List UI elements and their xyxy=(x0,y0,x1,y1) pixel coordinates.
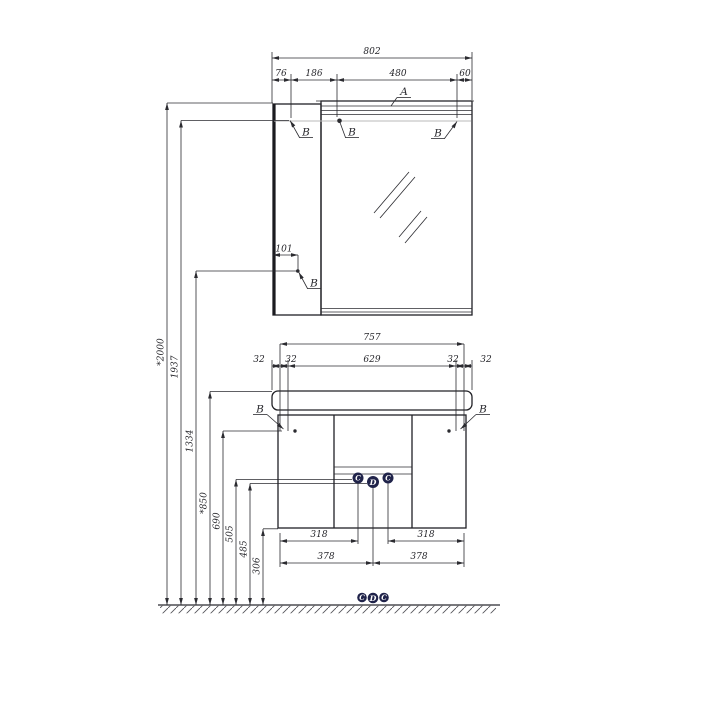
vanity-unit: C D C xyxy=(272,366,472,566)
dim-101-label: 101 xyxy=(275,245,292,255)
mirror-glass-hatch xyxy=(374,172,427,243)
side-offset-dimension: 101 B xyxy=(273,245,321,290)
mount-b5-label: B xyxy=(255,404,264,416)
outlet-d-label: D xyxy=(369,478,377,487)
technical-drawing: 802 76 186 480 60 A B B xyxy=(0,0,720,720)
dim-32a-label: 32 xyxy=(253,355,265,365)
dim-186-label: 186 xyxy=(305,69,322,79)
dim-318l-label: 318 xyxy=(310,530,327,540)
dim-629-label: 629 xyxy=(363,355,380,365)
mount-b6-label: B xyxy=(478,404,487,416)
height-505-label: 505 xyxy=(226,525,236,542)
dim-32d-label: 32 xyxy=(480,355,492,365)
outlet-c-label: C xyxy=(385,474,391,483)
dim-802-label: 802 xyxy=(363,47,380,57)
ground-hatch xyxy=(160,606,496,614)
dim-76-label: 76 xyxy=(275,69,287,79)
floor: C D C xyxy=(158,593,500,614)
height-690-label: 690 xyxy=(213,512,223,529)
mount-point-dot xyxy=(337,119,342,124)
dim-757-label: 757 xyxy=(363,333,380,343)
mount-b1-label: B xyxy=(301,127,310,139)
mirror-top-dimensions: 802 76 186 480 60 xyxy=(272,47,472,118)
drawing-canvas: 802 76 186 480 60 A B B xyxy=(0,0,720,720)
vanity-callouts: B B xyxy=(253,404,490,431)
bottom-dim-arrows xyxy=(280,539,464,565)
height-485-label: 485 xyxy=(240,540,250,558)
floor-outlet-d-label: D xyxy=(369,594,377,603)
section-a-label: A xyxy=(399,86,408,98)
height-1334-label: 1334 xyxy=(186,429,196,452)
countertop xyxy=(272,391,472,410)
dim-32b-label: 32 xyxy=(285,355,297,365)
dim-60-label: 60 xyxy=(459,69,471,79)
dimension-arrows-top xyxy=(272,56,472,82)
vanity-bottom-dimensions: 318 318 378 378 xyxy=(280,530,464,567)
dim-378l-label: 378 xyxy=(317,552,334,562)
height-dimensions: *2000 1937 1334 *850 690 505 485 306 xyxy=(157,103,368,605)
outlet-c-label: C xyxy=(355,474,361,483)
mount-b3-label: B xyxy=(433,128,442,140)
bracket-point-dot xyxy=(293,429,296,432)
height-850-label: *850 xyxy=(200,492,210,514)
hanging-brackets xyxy=(280,366,464,431)
dim-32c-label: 32 xyxy=(447,355,459,365)
mirror-callouts: A B B B xyxy=(288,86,458,140)
mount-b4-label: B xyxy=(309,278,318,290)
bracket-point-dot xyxy=(447,429,450,432)
dim-378r-label: 378 xyxy=(410,552,427,562)
height-306-label: 306 xyxy=(253,557,263,574)
floor-outlet-c-label: C xyxy=(381,593,387,602)
height-2000-label: *2000 xyxy=(157,338,167,366)
dim-480-label: 480 xyxy=(388,69,406,79)
height-1937-label: 1937 xyxy=(171,355,181,378)
floor-outlet-c-label: C xyxy=(359,593,365,602)
vanity-body xyxy=(278,415,466,528)
dim-318r-label: 318 xyxy=(417,530,434,540)
mount-b2-label: B xyxy=(347,127,356,139)
